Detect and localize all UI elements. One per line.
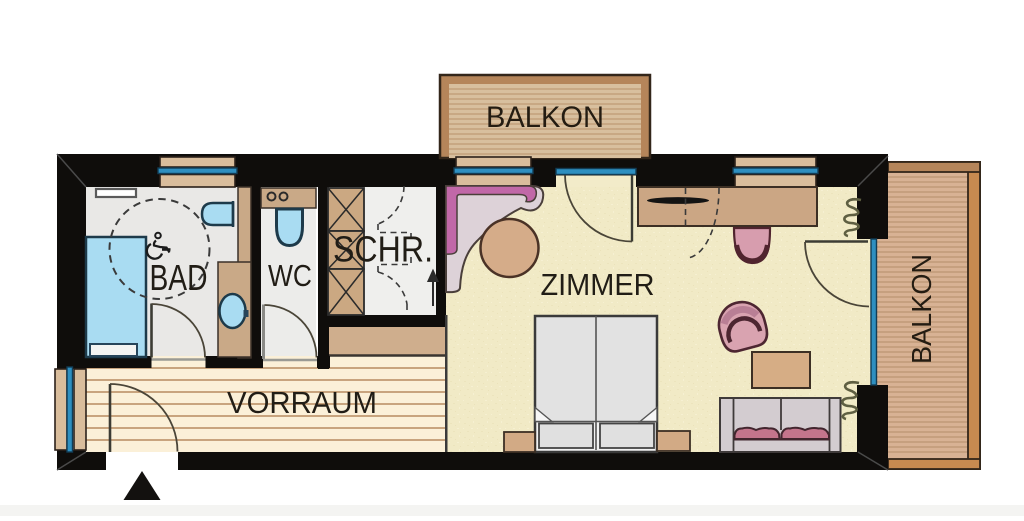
svg-text:ZIMMER: ZIMMER: [541, 267, 655, 302]
svg-text:VORRAUM: VORRAUM: [227, 385, 377, 420]
svg-text:SCHR.: SCHR.: [333, 229, 433, 270]
svg-text:BALKON: BALKON: [906, 254, 937, 364]
svg-text:BAD: BAD: [150, 257, 208, 298]
svg-text:WC: WC: [268, 258, 312, 293]
svg-text:BALKON: BALKON: [486, 101, 604, 134]
